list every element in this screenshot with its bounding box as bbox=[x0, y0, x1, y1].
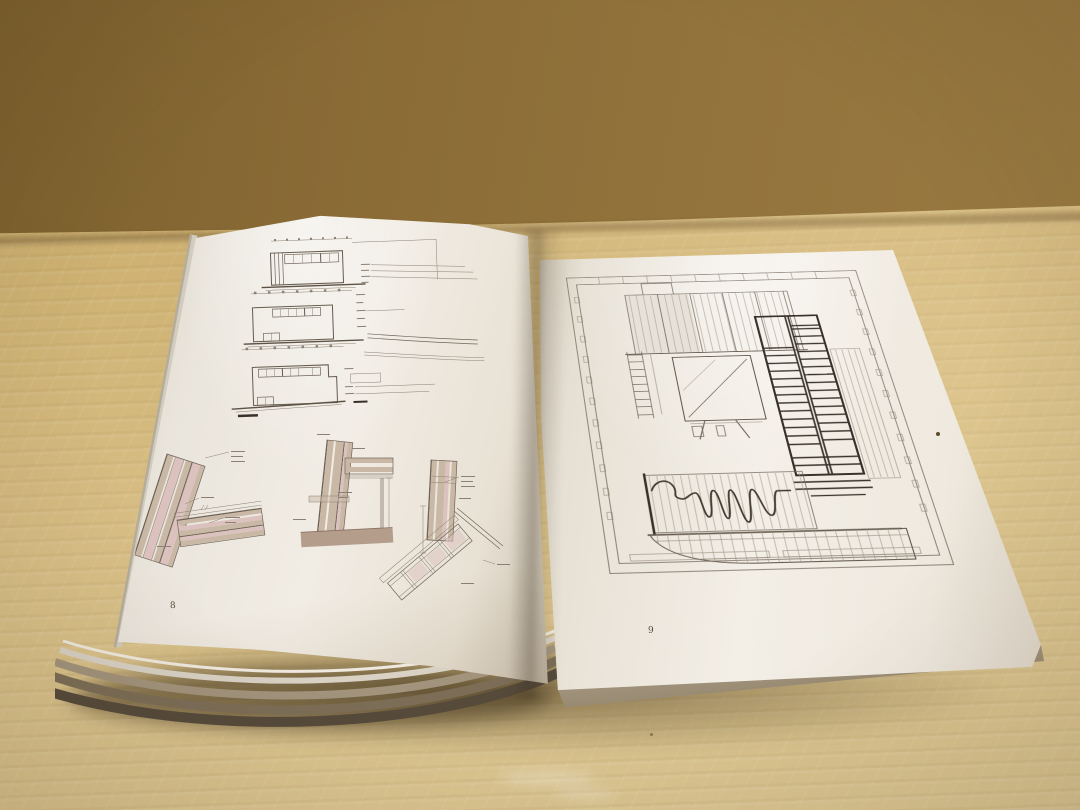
stair-main bbox=[751, 315, 875, 496]
table-speck bbox=[650, 733, 653, 736]
table-smudge bbox=[556, 789, 616, 799]
section-drawing-1 bbox=[260, 232, 478, 291]
page-number-9: 9 bbox=[648, 626, 654, 636]
annotation-labels bbox=[361, 260, 478, 283]
scale-bar bbox=[238, 415, 258, 416]
detail-drawing-2 bbox=[293, 434, 393, 547]
central-room bbox=[672, 355, 771, 439]
section-drawing-3 bbox=[230, 341, 436, 416]
page-number-8: 8 bbox=[170, 601, 176, 611]
mid-floor-hatch bbox=[637, 467, 902, 535]
curved-terrace bbox=[648, 528, 916, 566]
annotation-labels bbox=[344, 365, 435, 402]
floor-plan bbox=[563, 268, 959, 578]
long-section-lines bbox=[367, 330, 477, 348]
floor-plan-svg bbox=[563, 268, 959, 578]
roof-deck-hatch bbox=[615, 291, 808, 354]
paper-speck bbox=[936, 432, 940, 436]
book-gutter-shadow bbox=[508, 230, 566, 701]
section-drawing-2 bbox=[242, 284, 485, 369]
table-smudge bbox=[500, 770, 595, 786]
annotation-labels bbox=[356, 293, 405, 328]
photo-scene: 8 bbox=[0, 0, 1080, 810]
stair-secondary bbox=[627, 351, 663, 418]
leader-bracket bbox=[352, 239, 437, 282]
detail-drawing-3 bbox=[379, 460, 510, 602]
detail-drawing-1 bbox=[134, 451, 266, 567]
